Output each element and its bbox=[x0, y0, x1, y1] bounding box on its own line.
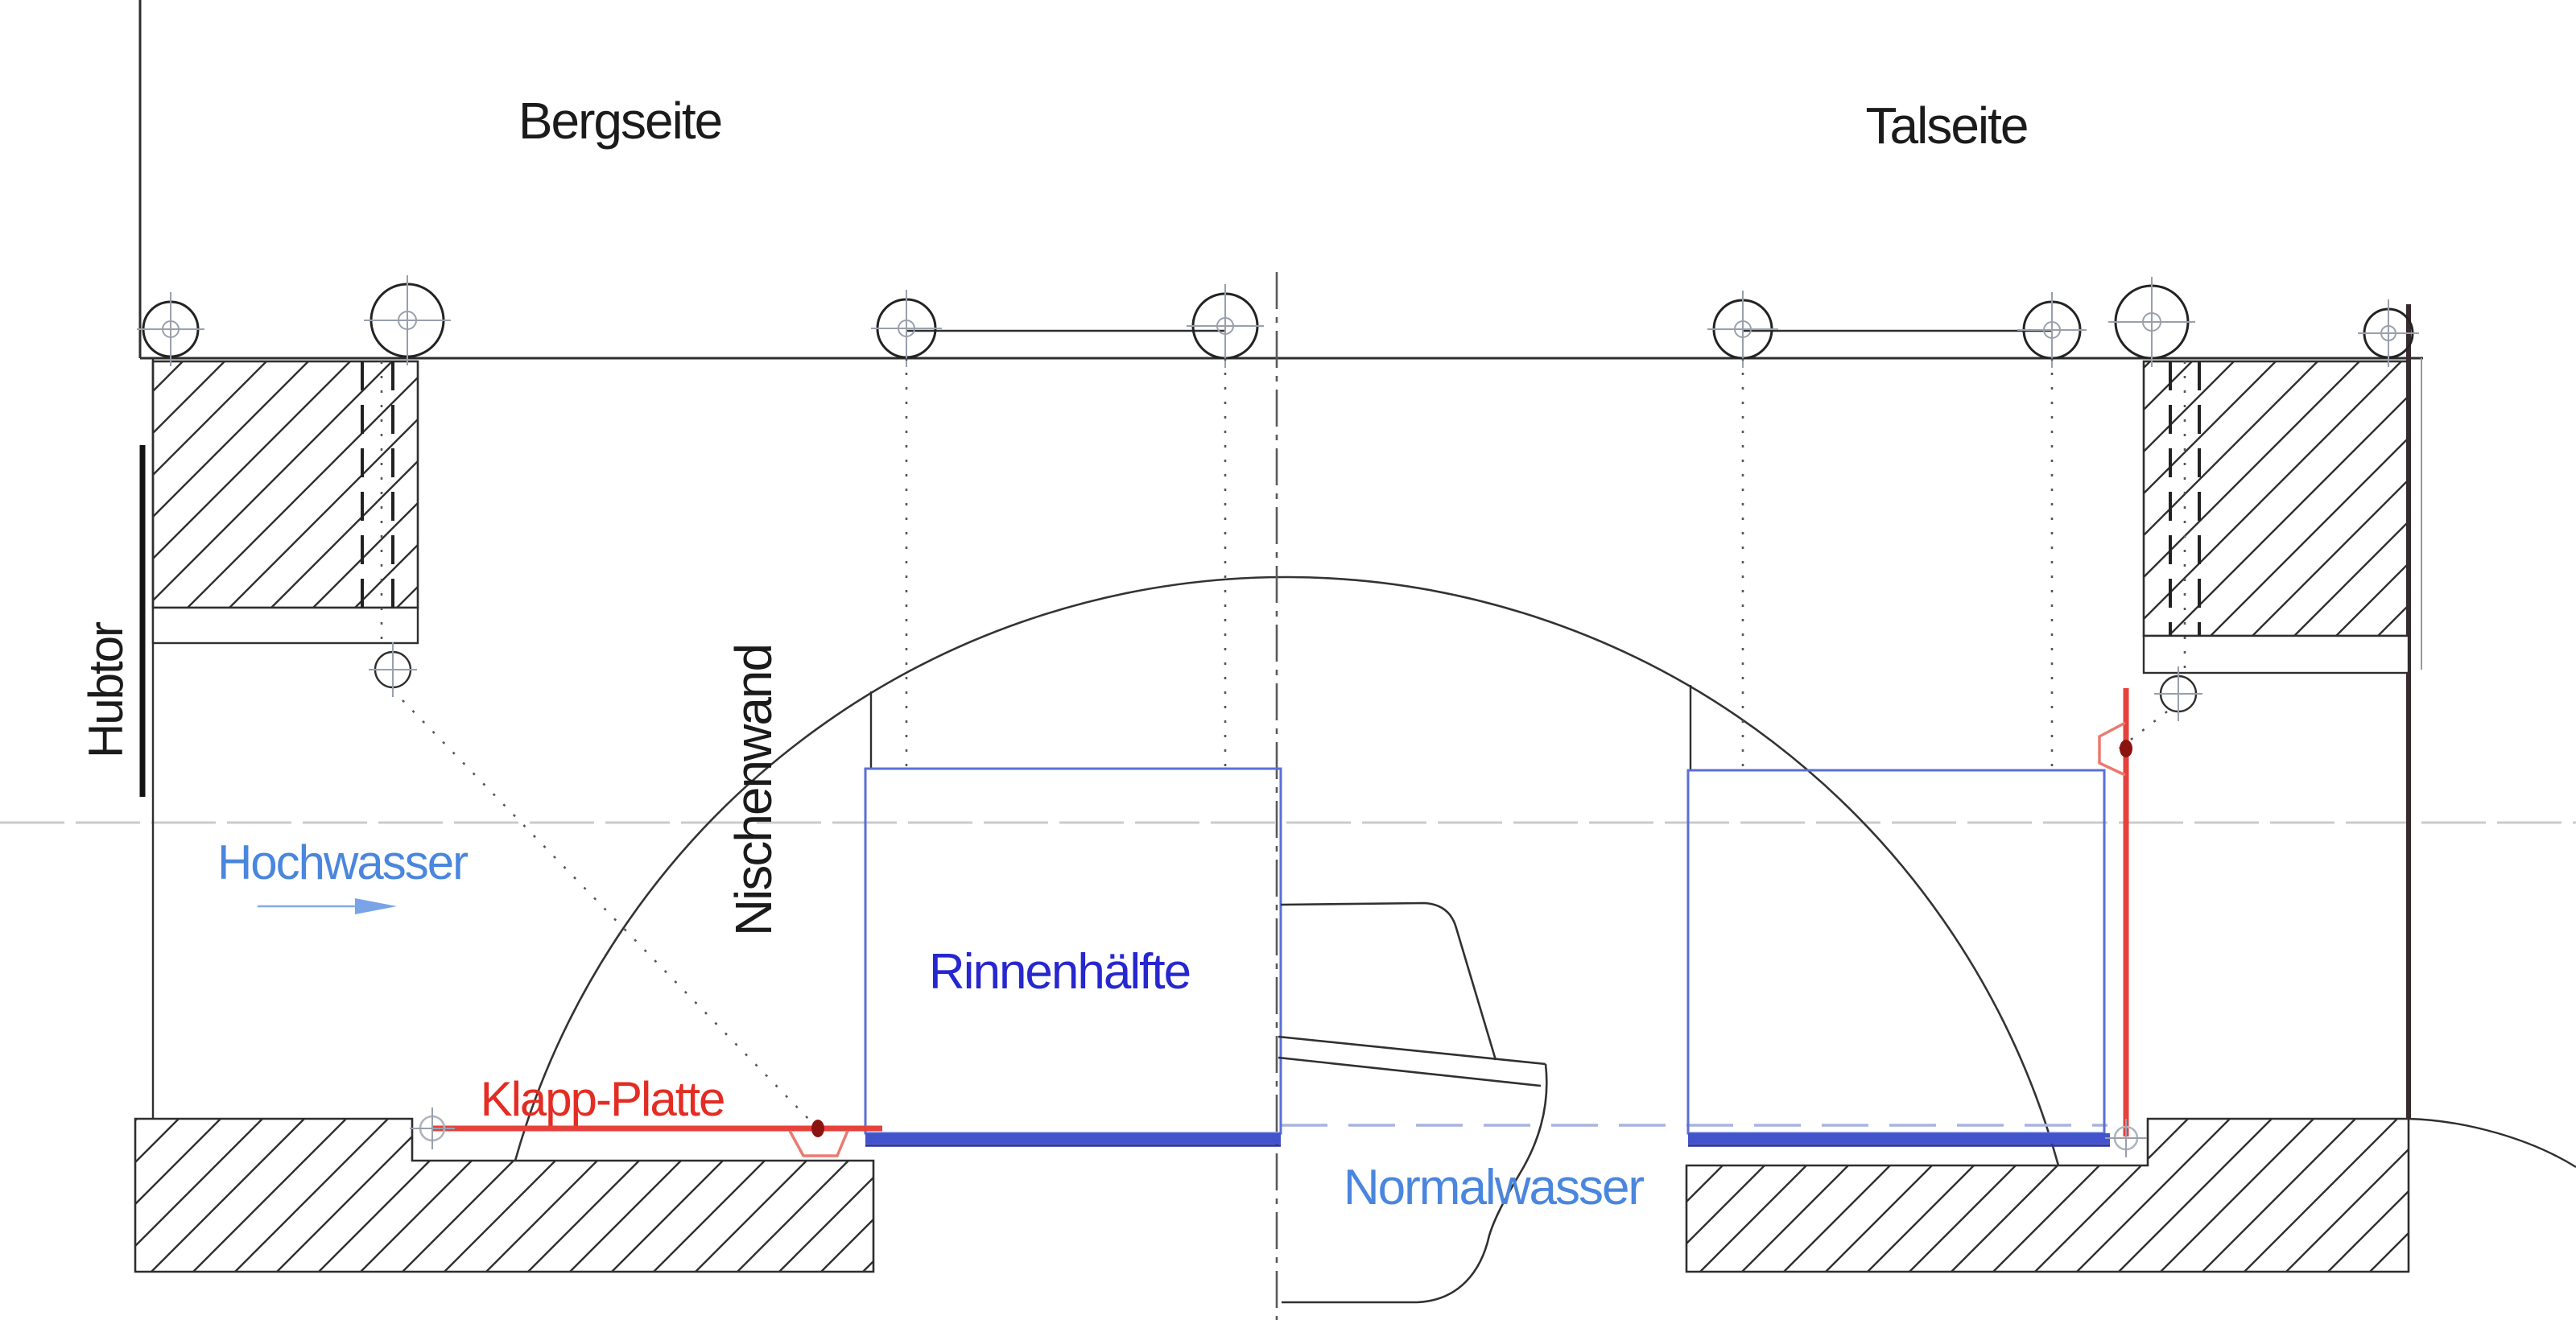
pulley-icon bbox=[871, 290, 942, 367]
hochwasser-flow-arrow-icon bbox=[258, 898, 397, 914]
right-channel-half bbox=[1688, 770, 2110, 1145]
suspension-cables bbox=[906, 358, 2052, 770]
klapp-platte-raised bbox=[2099, 688, 2167, 1157]
label-klapp-platte: Klapp-Platte bbox=[481, 1072, 724, 1126]
label-hochwasser: Hochwasser bbox=[217, 835, 468, 889]
pulley-icon bbox=[137, 292, 204, 366]
pulley-icon bbox=[364, 275, 451, 365]
technical-drawing-page: Bergseite Talseite Hubtor Nischenwand Ho… bbox=[0, 0, 2576, 1320]
pulley-icon bbox=[1707, 291, 1778, 368]
left-niche-block bbox=[153, 361, 418, 697]
right-bank-curve bbox=[2409, 1119, 2576, 1167]
lift-lock-section-drawing: Bergseite Talseite Hubtor Nischenwand Ho… bbox=[0, 0, 2576, 1320]
pulley-icon bbox=[1187, 284, 1264, 368]
label-rinnenhaelfte: Rinnenhälfte bbox=[929, 944, 1190, 1000]
pulley-icon bbox=[2017, 292, 2087, 368]
label-bergseite: Bergseite bbox=[518, 92, 721, 150]
label-normalwasser: Normalwasser bbox=[1344, 1160, 1645, 1215]
left-foundation bbox=[135, 1119, 873, 1272]
pulleys bbox=[137, 275, 2419, 368]
right-niche-block bbox=[2144, 361, 2409, 721]
pulley-icon bbox=[2108, 277, 2195, 367]
label-nischenwand: Nischenwand bbox=[724, 645, 782, 936]
label-talseite: Talseite bbox=[1866, 97, 2028, 155]
ship-outline bbox=[1278, 903, 1546, 1302]
label-hubtor: Hubtor bbox=[79, 622, 133, 758]
